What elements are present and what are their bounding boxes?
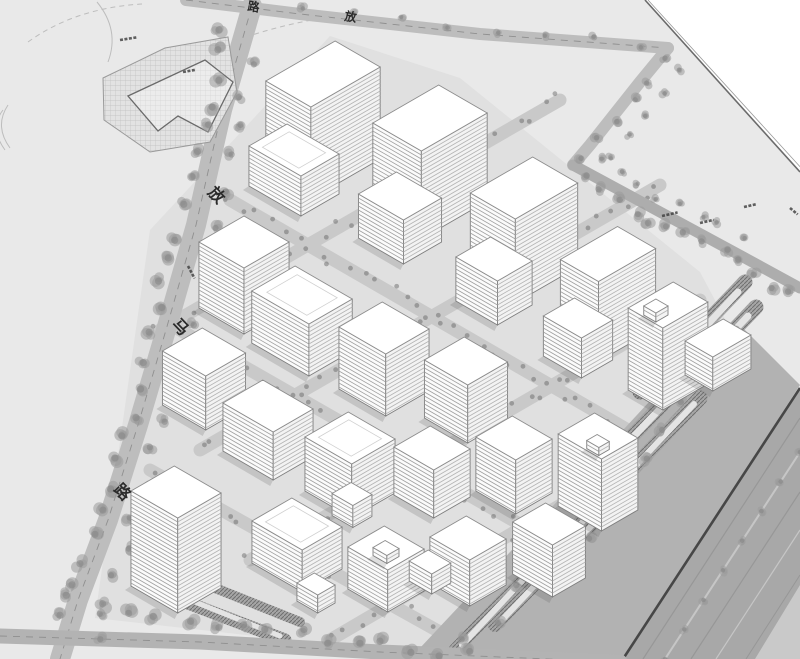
tree-clump bbox=[740, 234, 749, 242]
site-plan-stage: 路放放马路 bbox=[0, 0, 800, 659]
site-plan-svg: 路放放马路 bbox=[0, 0, 800, 659]
tree-clump bbox=[542, 31, 549, 41]
tree-clump bbox=[746, 267, 761, 278]
tree-clump bbox=[675, 227, 690, 238]
tree-clump bbox=[460, 643, 474, 655]
building bbox=[125, 466, 221, 619]
tree-clump bbox=[636, 43, 647, 51]
